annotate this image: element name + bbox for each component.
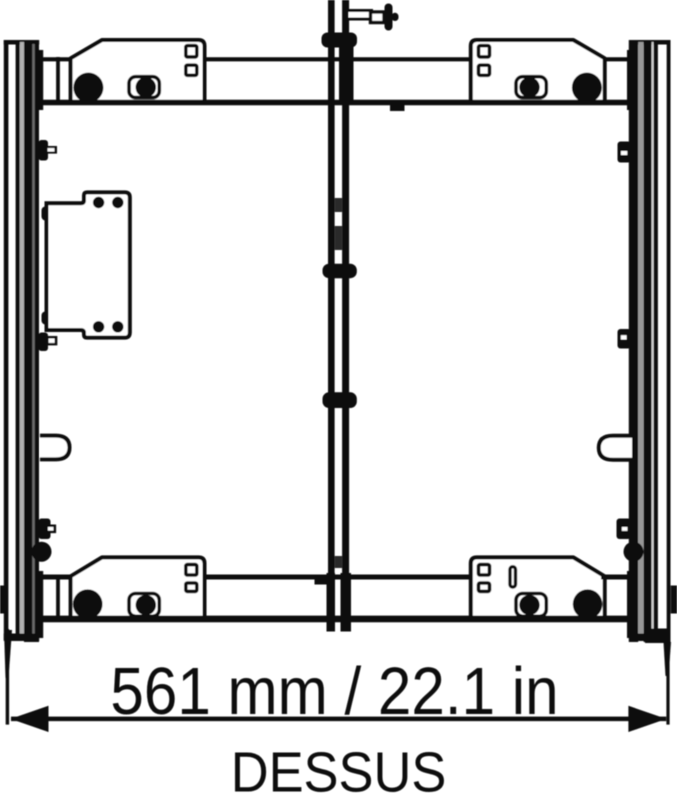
svg-text:DESSUS: DESSUS bbox=[231, 739, 447, 800]
svg-text:561 mm / 22.1 in: 561 mm / 22.1 in bbox=[110, 655, 558, 728]
